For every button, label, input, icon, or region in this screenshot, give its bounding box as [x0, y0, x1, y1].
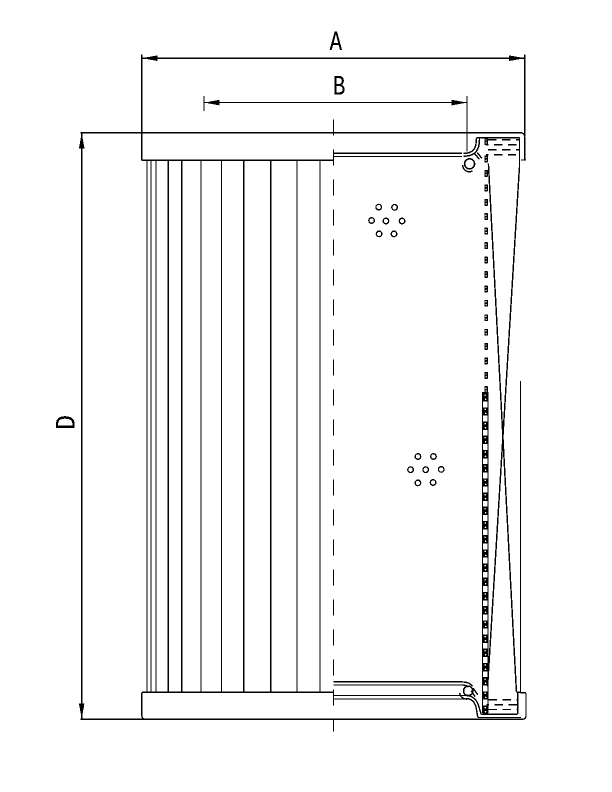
svg-text:A: A [330, 27, 343, 59]
svg-text:D: D [51, 415, 83, 430]
svg-text:B: B [333, 72, 345, 104]
